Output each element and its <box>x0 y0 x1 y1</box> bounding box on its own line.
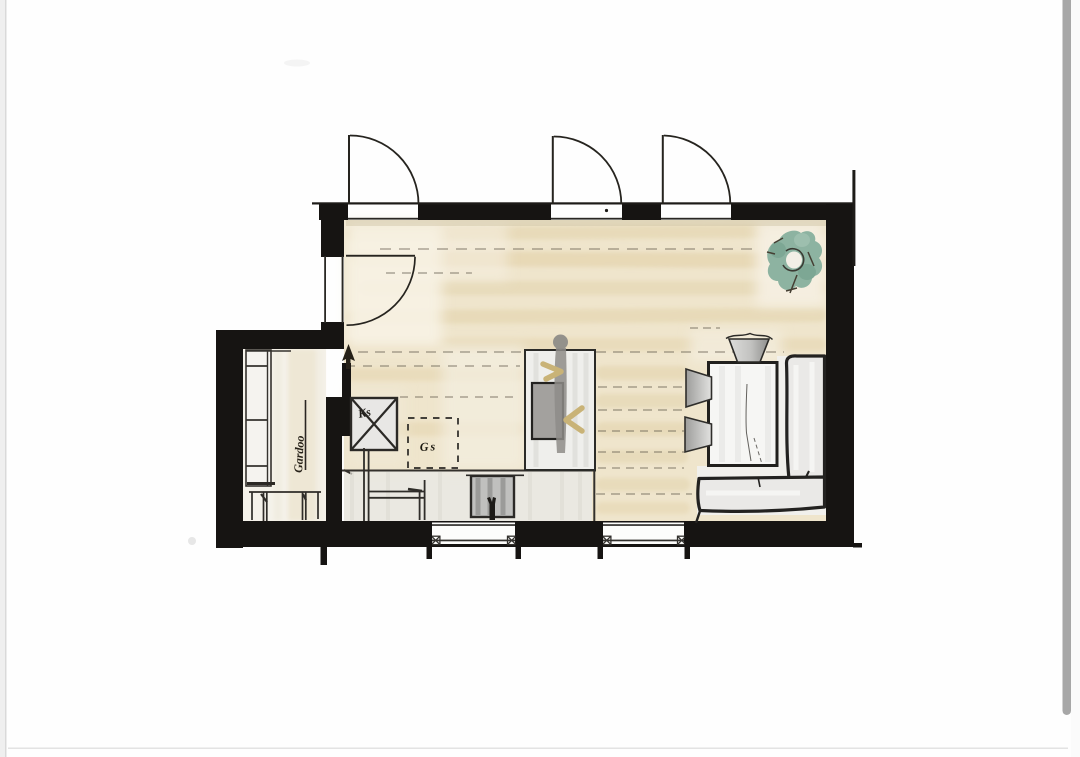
svg-text:Gardoo: Gardoo <box>291 435 307 473</box>
svg-text:Gs: Gs <box>419 439 437 454</box>
